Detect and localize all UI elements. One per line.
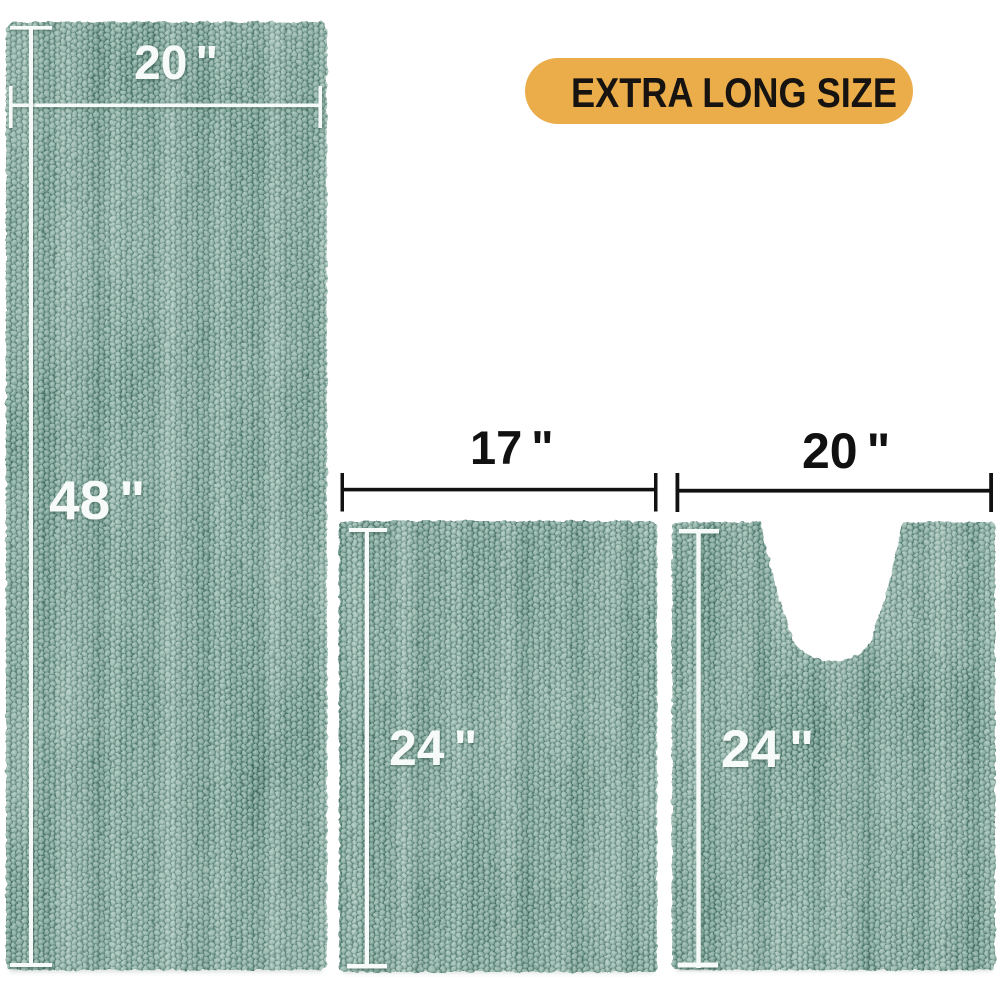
svg-text:20": 20" — [134, 37, 218, 90]
svg-text:48": 48" — [49, 469, 145, 531]
svg-text:24": 24" — [389, 720, 477, 776]
svg-text:20": 20" — [802, 423, 890, 479]
svg-text:24": 24" — [721, 720, 814, 779]
svg-text:EXTRA LONG SIZE: EXTRA LONG SIZE — [571, 69, 897, 116]
svg-text:17": 17" — [470, 421, 554, 474]
